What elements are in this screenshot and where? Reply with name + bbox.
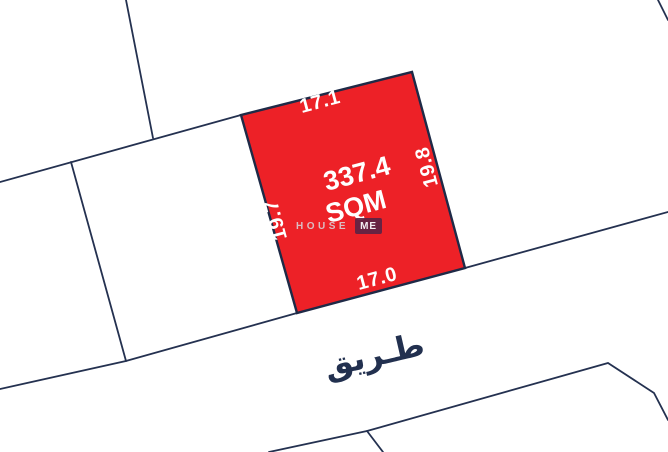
boundary-line-lower-divider [367,431,383,452]
boundary-line-road-lower [269,363,668,452]
plot-map-canvas: 17.1 19.8 19.7 17.0 337.4 SQM طـريق HOUS… [0,0,668,452]
boundary-line-left-divider [71,162,126,361]
highlighted-plot[interactable] [241,72,465,313]
parcel-boundaries-svg [0,0,668,452]
boundary-line-top-right-corner [658,0,668,20]
boundary-line-road-upper-left [0,313,297,389]
boundary-line-upper-left-divider [126,0,153,138]
boundary-line-road-upper-right [465,212,668,268]
boundary-line-upper-row [0,115,241,182]
